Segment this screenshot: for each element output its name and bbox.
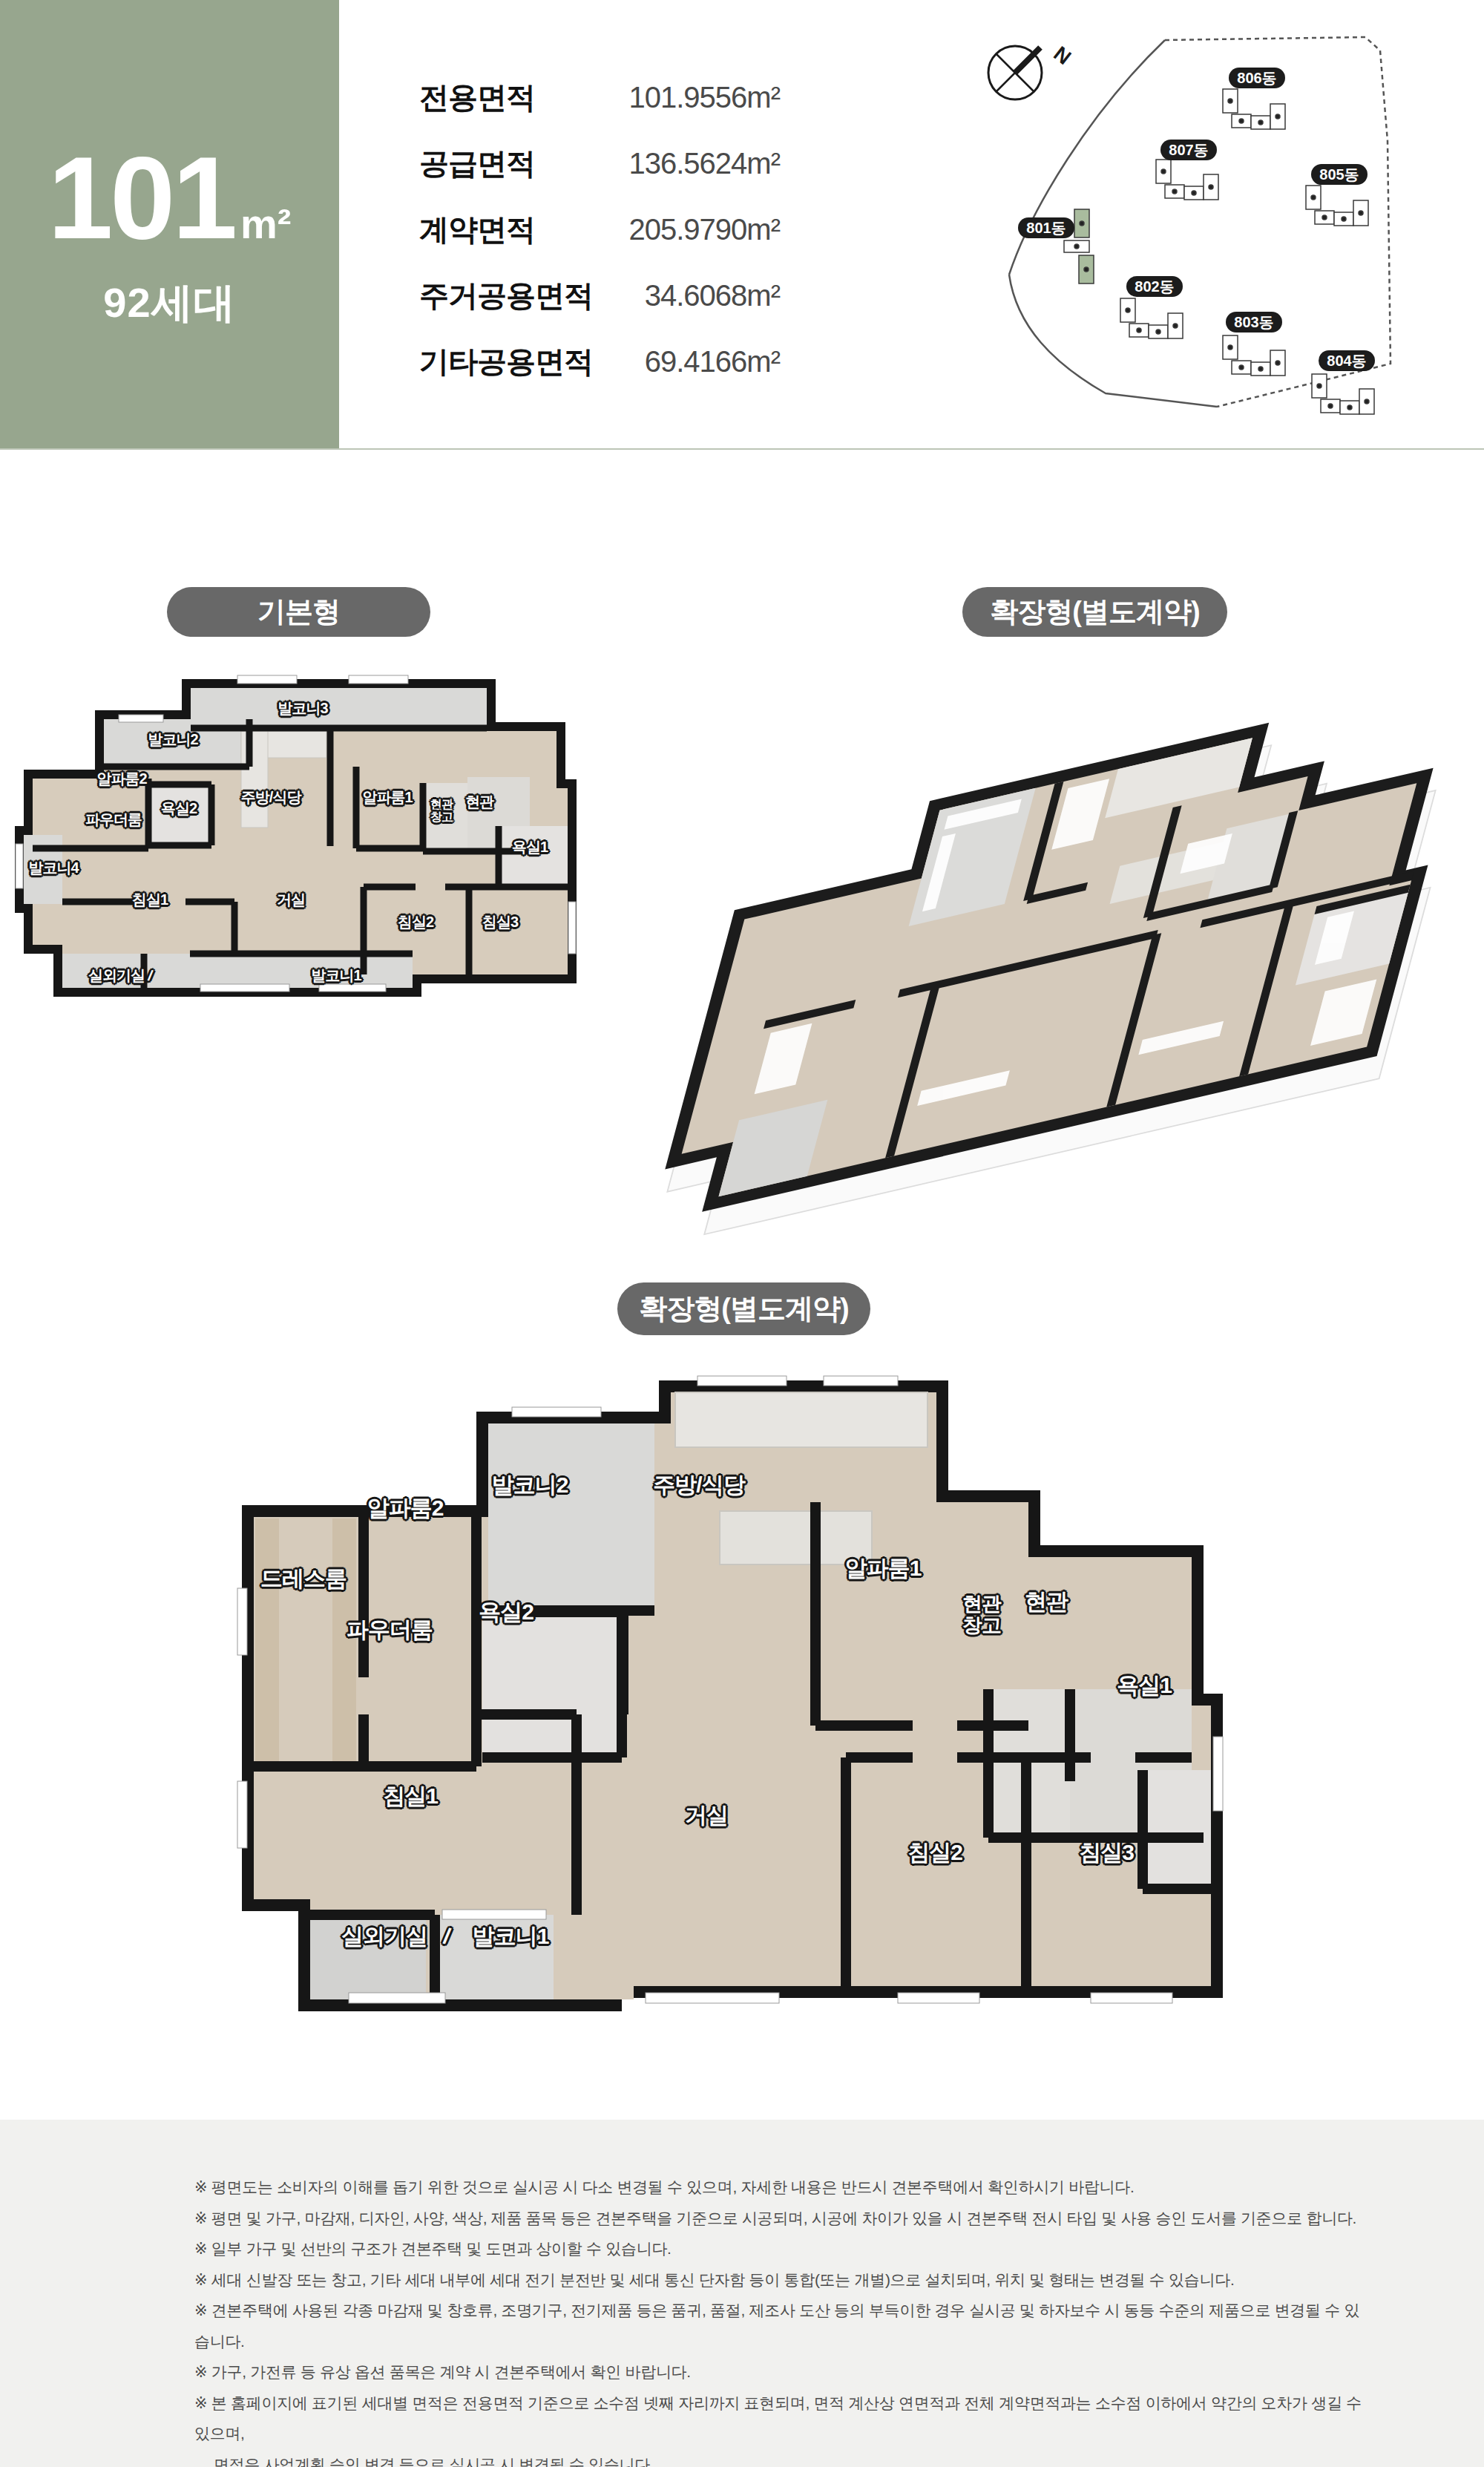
room-label-living: 거실 [685, 1803, 728, 1827]
room-label-bath1: 욕실1 [1117, 1674, 1172, 1697]
disclaimer-line: 면적은 사업계획 승인 변경 등으로 실시공 시 변경될 수 있습니다. [194, 2449, 1373, 2467]
table-row: 기타공용면적 69.4166m² [419, 341, 780, 375]
room-label-bath1: 욕실1 [512, 839, 548, 856]
extended-floorplan-drawing [215, 1366, 1224, 2011]
room-label-alpha1: 알파룸1 [845, 1556, 922, 1580]
room-label-ac-room: 실외기실 [88, 968, 145, 984]
header-divider [0, 448, 1484, 450]
row-label: 전용면적 [419, 77, 535, 118]
disclaimer-line: ※ 본 홈페이지에 표기된 세대별 면적은 전용면적 기준으로 소수점 넷째 자… [194, 2388, 1373, 2449]
room-label-bedroom1: 침실1 [383, 1784, 438, 1808]
room-label-bath2: 욕실2 [479, 1600, 533, 1624]
building-802 [1120, 298, 1183, 338]
room-label-kitchen: 주방/식당 [241, 790, 301, 806]
area-table: 전용면적 101.9556m² 공급면적 136.5624m² 계약면적 205… [419, 77, 780, 407]
disclaimer-line: ※ 평면 및 가구, 마감재, 디자인, 사양, 색상, 제품 품목 등은 견본… [194, 2203, 1373, 2234]
room-label-bath2: 욕실2 [161, 801, 197, 817]
row-value: 136.5624m² [629, 147, 780, 180]
room-label-ac-room: 실외기실 [341, 1924, 427, 1948]
building-label: 805동 [1319, 166, 1359, 183]
disclaimer-box: ※ 평면도는 소비자의 이해를 돕기 위한 것으로 실시공 시 다소 변경될 수… [0, 2120, 1484, 2467]
row-label: 공급면적 [419, 143, 535, 184]
building-804 [1312, 374, 1374, 414]
room-label-balcony1: 발코니1 [473, 1924, 549, 1948]
room-label-kitchen: 주방/식당 [653, 1473, 744, 1497]
room-label-living: 거실 [277, 892, 305, 908]
disclaimer-line: ※ 세대 신발장 또는 창고, 기타 세대 내부에 세대 전기 분전반 및 세대… [194, 2264, 1373, 2296]
table-row: 계약면적 205.9790m² [419, 209, 780, 243]
disclaimer-line: ※ 일부 가구 및 선반의 구조가 견본주택 및 도면과 상이할 수 있습니다. [194, 2233, 1373, 2264]
floorplan-page: 101 m² 92세대 전용면적 101.9556m² 공급면적 136.562… [0, 0, 1484, 2467]
disclaimer-line: ※ 견본주택에 사용된 각종 마감재 및 창호류, 조명기구, 전기제품 등은 … [194, 2295, 1373, 2356]
extended-type-pill-plan: 확장형(별도계약) [617, 1282, 870, 1335]
disclaimer-line: ※ 평면도는 소비자의 이해를 돕기 위한 것으로 실시공 시 다소 변경될 수… [194, 2172, 1373, 2203]
room-label-alpha2: 알파룸2 [367, 1496, 444, 1520]
building-label: 801동 [1026, 220, 1066, 236]
building-807 [1156, 160, 1218, 200]
row-value: 101.9556m² [629, 81, 780, 114]
extended-type-pill-3d: 확장형(별도계약) [962, 587, 1227, 637]
room-label-powder: 파우더룸 [85, 812, 142, 828]
building-806 [1223, 89, 1285, 129]
room-label-entry: 현관 [1025, 1590, 1068, 1613]
building-805 [1306, 186, 1368, 226]
unit-count: 92세대 [103, 275, 235, 332]
table-row: 주거공용면적 34.6068m² [419, 275, 780, 309]
room-label-bedroom2: 침실2 [398, 914, 433, 931]
basic-floorplan: 발코니3 발코니2 알파룸2 주방/식당 알파룸1 현관 창고 현관 욕실2 파… [15, 657, 579, 1002]
room-label-alpha1: 알파룸1 [362, 790, 412, 806]
row-value: 205.9790m² [629, 213, 780, 246]
area-size: 101 m² [47, 139, 291, 256]
area-number: 101 [47, 139, 234, 256]
room-label-balcony4: 발코니4 [28, 860, 78, 877]
room-label-balcony2: 발코니2 [492, 1473, 568, 1497]
building-label: 803동 [1234, 314, 1273, 330]
room-label-bedroom2: 침실2 [907, 1841, 962, 1864]
room-label-bedroom1: 침실1 [132, 892, 168, 908]
room-label-entry-storage: 현관 창고 [962, 1593, 1001, 1637]
room-label-balcony2: 발코니2 [148, 732, 197, 748]
area-unit: m² [240, 200, 291, 248]
room-label-bedroom3: 침실3 [482, 914, 518, 931]
room-label-entry-storage: 현관 창고 [430, 798, 453, 824]
table-row: 공급면적 136.5624m² [419, 143, 780, 177]
area-badge: 101 m² 92세대 [0, 0, 339, 448]
site-map: N [920, 7, 1439, 442]
extended-3d-view [653, 631, 1477, 1254]
room-label-bedroom3: 침실3 [1079, 1841, 1134, 1864]
room-label-balcony1: 발코니1 [311, 968, 361, 984]
room-label-alpha2: 알파룸2 [96, 771, 146, 787]
row-value: 34.6068m² [645, 279, 780, 312]
row-label: 주거공용면적 [419, 275, 593, 316]
site-boundary-solid [1009, 40, 1165, 275]
room-label-entry: 현관 [465, 794, 493, 810]
compass-icon: N [988, 42, 1075, 99]
row-label: 기타공용면적 [419, 341, 593, 382]
basic-type-pill: 기본형 [167, 587, 430, 637]
row-label: 계약면적 [419, 209, 535, 250]
extended-floorplan: 발코니2 주방/식당 알파룸2 드레스룸 파우더룸 욕실2 알파룸1 현관 창고… [215, 1366, 1224, 2011]
building-label: 807동 [1169, 142, 1208, 158]
building-label: 806동 [1237, 70, 1276, 86]
building-803 [1223, 335, 1285, 376]
building-label: 804동 [1327, 353, 1366, 369]
room-label-balcony3: 발코니3 [278, 701, 327, 717]
table-row: 전용면적 101.9556m² [419, 77, 780, 111]
building-label: 802동 [1135, 278, 1174, 295]
row-value: 69.4166m² [645, 345, 780, 379]
disclaimer-line: ※ 가구, 가전류 등 유상 옵션 품목은 계약 시 견본주택에서 확인 바랍니… [194, 2356, 1373, 2388]
room-label-dressroom: 드레스룸 [260, 1567, 347, 1590]
room-label-powder: 파우더룸 [347, 1618, 433, 1642]
north-label: N [1049, 42, 1075, 69]
